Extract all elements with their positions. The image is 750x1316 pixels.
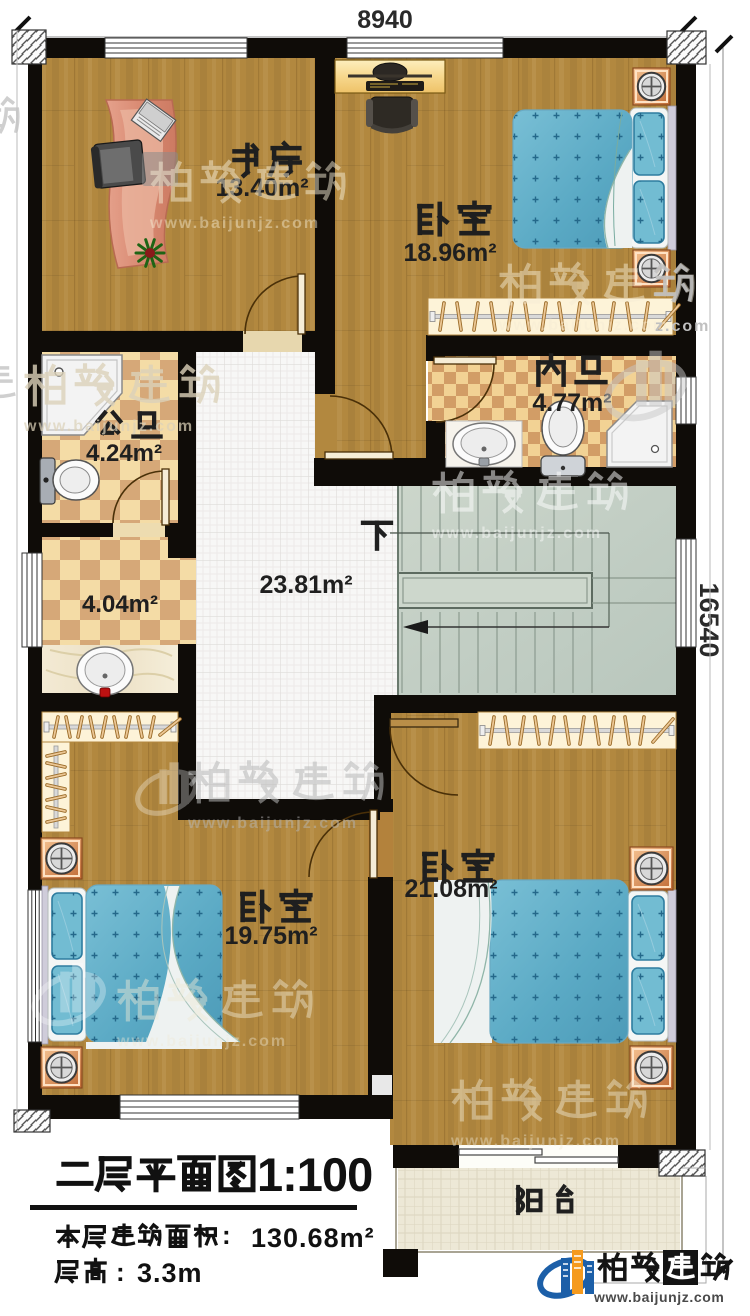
svg-text:1:100: 1:100: [257, 1148, 372, 1201]
svg-text:18.96m²: 18.96m²: [403, 239, 496, 267]
svg-text:8940: 8940: [357, 6, 413, 34]
svg-text:www.baijunjz.com: www.baijunjz.com: [149, 215, 320, 232]
svg-text:21.08m²: 21.08m²: [404, 875, 497, 903]
svg-text:130.68m²: 130.68m²: [251, 1223, 375, 1253]
svg-text:4.04m²: 4.04m²: [82, 591, 158, 618]
svg-text:www.baijunjz.com: www.baijunjz.com: [116, 1033, 287, 1050]
svg-text:www.baijunjz.com: www.baijunjz.com: [498, 317, 669, 334]
svg-text:www.baijunjz.com: www.baijunjz.com: [187, 815, 358, 832]
svg-text:z.com: z.com: [655, 318, 710, 335]
svg-text:www.baijunjz.com: www.baijunjz.com: [23, 418, 194, 435]
svg-text:4.77m²: 4.77m²: [532, 389, 611, 417]
svg-text:www.baijunjz.com: www.baijunjz.com: [431, 525, 602, 542]
svg-text:19.75m²: 19.75m²: [224, 922, 317, 950]
svg-text:4.24m²: 4.24m²: [86, 440, 162, 467]
svg-text:www.baijunjz.com: www.baijunjz.com: [450, 1133, 621, 1150]
svg-text:23.81m²: 23.81m²: [259, 571, 352, 599]
svg-text:16540: 16540: [694, 582, 724, 657]
svg-text::: :: [116, 1257, 125, 1287]
svg-text:3.3m: 3.3m: [137, 1258, 203, 1288]
svg-text:www.baijunjz.com: www.baijunjz.com: [593, 1289, 724, 1305]
svg-text::: :: [222, 1220, 231, 1250]
